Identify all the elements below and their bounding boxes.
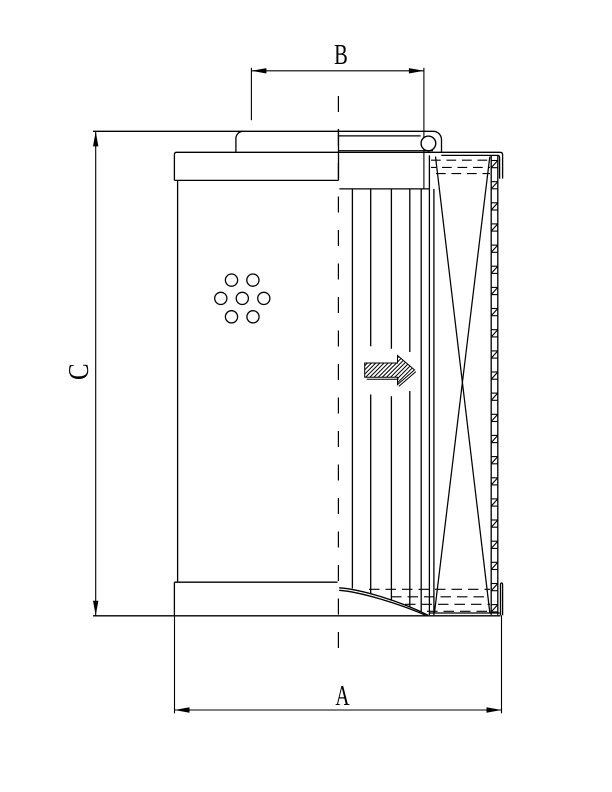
svg-text:C: C <box>63 363 95 380</box>
svg-text:B: B <box>334 40 348 71</box>
svg-text:A: A <box>335 681 350 712</box>
